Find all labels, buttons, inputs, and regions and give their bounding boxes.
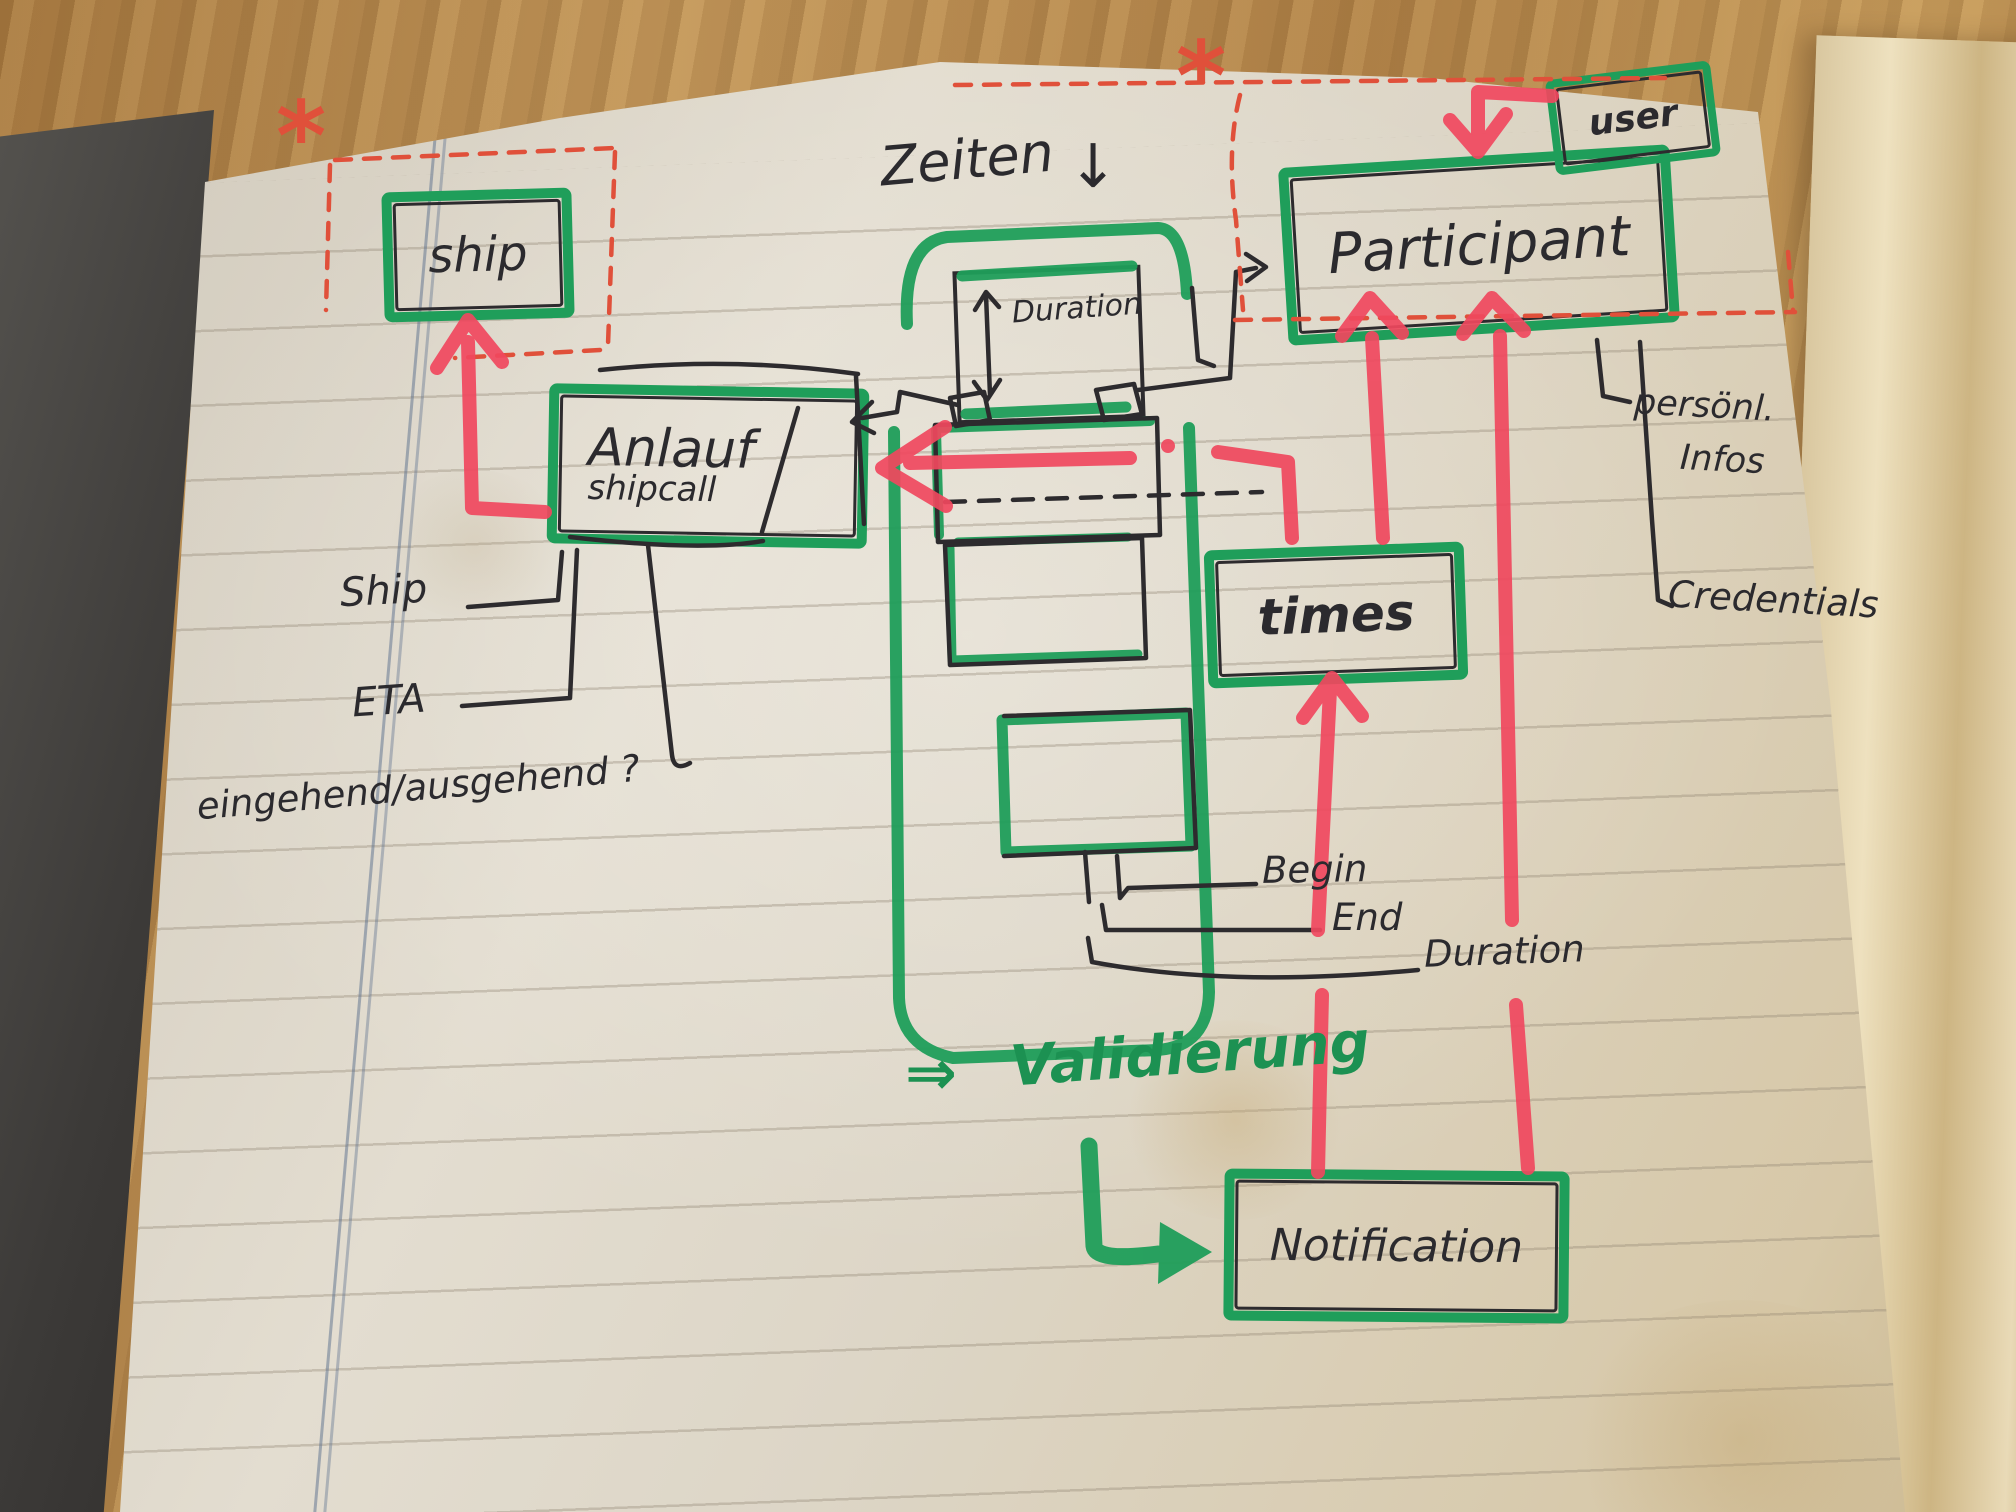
asterisk-participant: * <box>1176 58 1226 96</box>
note-end: End <box>1332 896 1402 939</box>
validierung-implies-icon: ⇒ <box>905 1036 957 1109</box>
asterisk-ship: * <box>276 118 326 156</box>
photo-of-notebook-sketch: ship Anlauf shipcall Participant user Du… <box>0 0 2016 1512</box>
note-personal-line1: persönl. <box>1633 382 1776 429</box>
note-ship-attr: Ship <box>339 566 429 617</box>
note-eingehend-ausgehend: eingehend/ausgehend ? <box>195 747 642 829</box>
note-personal-line2: Infos <box>1679 438 1765 482</box>
note-credentials: Credentials <box>1667 573 1879 627</box>
annotations-layer: * * Zeiten ↓ Ship ETA eingehend/ausgehen… <box>0 0 2016 1512</box>
note-validierung: Validierung <box>1008 1010 1372 1100</box>
down-arrow-icon: ↓ <box>1068 132 1118 202</box>
note-duration-attr: Duration <box>1423 927 1585 976</box>
note-begin: Begin <box>1262 847 1368 892</box>
note-eta: ETA <box>350 675 426 726</box>
note-zeiten: Zeiten <box>878 121 1057 199</box>
